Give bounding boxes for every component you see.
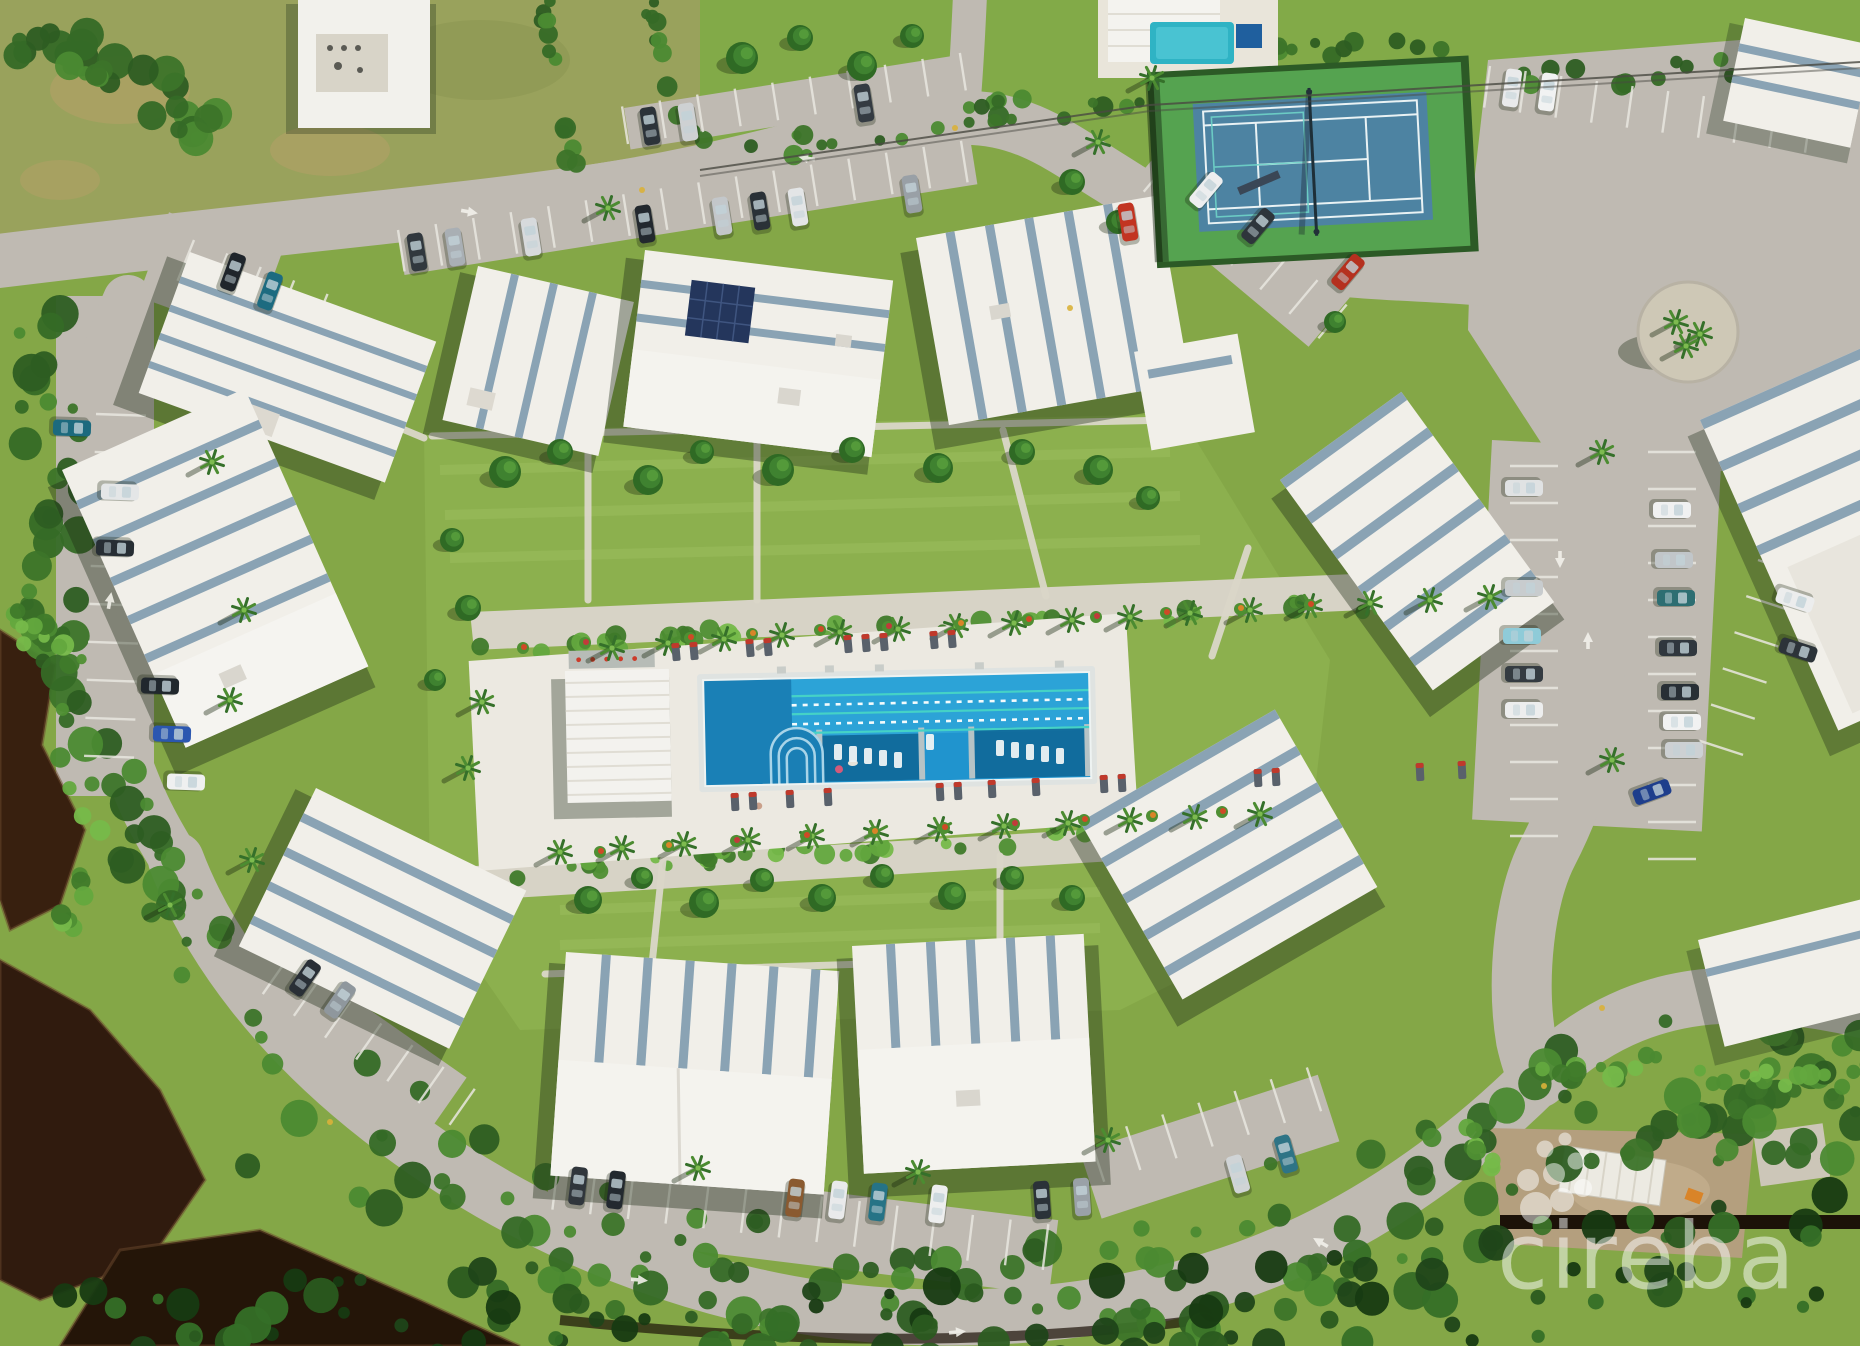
canopy-blob (138, 101, 167, 130)
canopy-blob (954, 842, 966, 854)
canopy-blob (1489, 1087, 1525, 1123)
canopy-blob (1467, 1141, 1487, 1161)
canopy-blob (51, 904, 71, 924)
lounger (786, 790, 795, 808)
lounger (929, 631, 939, 650)
canopy-blob (1506, 1183, 1518, 1195)
canopy-blob (1444, 1317, 1460, 1333)
canopy-blob (816, 140, 827, 151)
canopy-blob (1189, 1294, 1223, 1328)
lounger (1416, 763, 1425, 781)
flower-shrub (882, 621, 894, 633)
canopy-blob (1387, 1202, 1425, 1240)
canopy-blob (31, 351, 58, 378)
canopy-blob (471, 638, 489, 656)
canopy-blob (1136, 1246, 1160, 1270)
road-marking (1067, 305, 1073, 311)
canopy-blob (194, 104, 223, 133)
canopy-blob (166, 1288, 199, 1321)
car (1030, 1180, 1053, 1223)
canopy-blob (74, 807, 92, 825)
canopy-blob (153, 1294, 164, 1305)
canopy-blob (1032, 1303, 1043, 1314)
canopy-blob (1143, 1322, 1165, 1344)
canopy-blob (37, 313, 64, 340)
canopy-blob (1552, 1064, 1570, 1082)
canopy-blob (1790, 1128, 1818, 1156)
flower-shrub (730, 835, 742, 847)
canopy-blob (283, 1269, 307, 1293)
canopy-blob (601, 1213, 624, 1236)
canopy-blob (1670, 56, 1683, 69)
road-marking (327, 1119, 333, 1125)
car (149, 722, 192, 743)
canopy-blob (540, 13, 556, 29)
flower-shrub (1146, 810, 1158, 822)
aerial-photo: cireba (0, 0, 1860, 1346)
canopy-blob (645, 10, 659, 24)
canopy-blob (611, 1315, 638, 1342)
flower-shrub (594, 846, 606, 858)
canopy-blob (1651, 1110, 1680, 1139)
canopy-blob (1335, 40, 1352, 57)
canopy-blob (105, 1297, 126, 1318)
canopy-blob (438, 1130, 466, 1158)
canopy-blob (1088, 98, 1098, 108)
pool-lounger (996, 740, 1004, 756)
canopy-blob (9, 427, 42, 460)
canopy-blob (1235, 1292, 1255, 1312)
canopy-blob (85, 777, 100, 792)
canopy-blob (567, 154, 586, 173)
canopy-blob (1532, 1330, 1545, 1343)
canopy-blob (1416, 1258, 1449, 1291)
canopy-blob (1638, 1047, 1655, 1064)
lounger (1458, 761, 1467, 779)
canopy-blob (22, 551, 52, 581)
canopy-blob (802, 1282, 820, 1300)
car (137, 674, 180, 695)
canopy-blob (1356, 1140, 1385, 1169)
car (1501, 477, 1543, 497)
canopy-blob (1389, 33, 1406, 50)
lounger (824, 788, 833, 806)
lounger (749, 792, 758, 810)
lounger (936, 783, 945, 801)
spa (1236, 24, 1262, 48)
canopy-blob (1057, 1286, 1081, 1310)
canopy-blob (1089, 1263, 1125, 1299)
flower-shrub (662, 840, 674, 852)
canopy-blob (855, 845, 872, 862)
canopy-blob (16, 636, 31, 651)
canopy-blob (1762, 1141, 1786, 1165)
canopy-blob (10, 603, 26, 619)
canopy-blob (26, 618, 43, 635)
lounger (1100, 775, 1109, 793)
canopy-blob (51, 639, 67, 655)
car (1657, 681, 1699, 701)
canopy-blob (1178, 1253, 1209, 1284)
canopy-blob (15, 620, 28, 633)
canopy-blob (1694, 1065, 1706, 1077)
canopy-blob (74, 886, 93, 905)
canopy-blob (1353, 1257, 1378, 1282)
flower-shrub (1234, 603, 1246, 615)
canopy-blob (26, 27, 50, 51)
canopy-blob (1130, 1299, 1151, 1320)
car (1655, 637, 1697, 657)
roof-terrace (316, 34, 388, 92)
lounger (861, 634, 871, 653)
pool-lounger (849, 746, 857, 762)
canopy-blob (1334, 1215, 1361, 1242)
canopy-blob (640, 1251, 651, 1262)
canopy-blob (50, 747, 70, 767)
canopy-blob (262, 1053, 283, 1074)
canopy-blob (67, 690, 92, 715)
canopy-blob (589, 1312, 605, 1328)
canopy-blob (1846, 1065, 1860, 1079)
car (49, 416, 92, 437)
canopy-blob (255, 1291, 288, 1324)
pool-lounger (894, 752, 902, 768)
car (1501, 577, 1543, 597)
flower-shrub (954, 618, 966, 630)
canopy-blob (170, 121, 187, 138)
flower-shrub (814, 624, 826, 636)
canopy-blob (140, 798, 153, 811)
canopy-blob (728, 1262, 749, 1283)
pool-house (550, 649, 671, 819)
canopy-blob (235, 1153, 260, 1178)
canopy-blob (366, 1189, 403, 1226)
car (1653, 587, 1695, 607)
pool-steps (770, 728, 823, 785)
canopy-blob (110, 786, 146, 822)
canopy-blob (553, 1284, 583, 1314)
pool-lounger (834, 744, 842, 760)
canopy-blob (369, 1129, 396, 1156)
car (1501, 663, 1543, 683)
canopy-blob (732, 1313, 753, 1334)
canopy-blob (501, 1216, 533, 1248)
canopy-blob (964, 117, 975, 128)
canopy-blob (1716, 1138, 1739, 1161)
lounger (1254, 769, 1263, 787)
canopy-blob (182, 937, 192, 947)
flower-shrub (1304, 599, 1316, 611)
canopy-blob (1255, 1251, 1288, 1284)
canopy-blob (638, 1313, 650, 1325)
canopy-blob (1321, 1311, 1339, 1329)
pool-lounger (1041, 746, 1049, 762)
lounger (731, 793, 740, 811)
canopy-blob (1483, 1158, 1501, 1176)
canopy-blob (110, 848, 146, 884)
canopy-blob (542, 44, 556, 58)
canopy-blob (70, 18, 104, 52)
canopy-blob (826, 138, 837, 149)
flower-shrub (1078, 814, 1090, 826)
canopy-blob (63, 587, 89, 613)
canopy-blob (434, 1173, 450, 1189)
canopy-blob (21, 584, 37, 600)
canopy-blob (1464, 1182, 1498, 1216)
canopy-blob (1327, 1250, 1343, 1266)
lounger (954, 782, 963, 800)
canopy-blob (1286, 44, 1298, 56)
flower-shrub (800, 830, 812, 842)
flower-shrub (1008, 818, 1020, 830)
canopy-blob (526, 1261, 539, 1274)
pool-lounger (1056, 748, 1064, 764)
canopy-blob (77, 654, 87, 664)
canopy-blob (1627, 1060, 1643, 1076)
canopy-blob (1677, 1104, 1711, 1138)
canopy-blob (85, 64, 107, 86)
canopy-blob (53, 1283, 78, 1308)
neighbor-house (1098, 0, 1278, 78)
flower-shrub (1022, 614, 1034, 626)
flower-shrub (1160, 607, 1172, 619)
canopy-blob (469, 1124, 499, 1154)
canopy-blob (1558, 1090, 1572, 1104)
pool-lounger (864, 748, 872, 764)
lounger (1272, 768, 1281, 786)
canopy-blob (189, 1330, 201, 1342)
canopy-blob (555, 117, 576, 138)
canopy-blob (79, 1277, 107, 1305)
road-marking (639, 187, 645, 193)
canopy-blob (14, 327, 26, 339)
solar-panels (685, 280, 755, 343)
canopy-blob (15, 400, 29, 414)
lounger (843, 635, 853, 654)
car (1501, 699, 1543, 719)
canopy-blob (912, 1315, 938, 1341)
canopy-blob (793, 125, 813, 145)
lounger (1118, 774, 1127, 792)
canopy-blob (963, 101, 976, 114)
canopy-blob (931, 121, 945, 135)
canopy-blob (1000, 1255, 1025, 1280)
canopy-blob (1566, 59, 1586, 79)
canopy-blob (1239, 1220, 1255, 1236)
canopy-blob (55, 52, 84, 81)
canopy-blob (651, 32, 668, 49)
canopy-blob (1006, 114, 1017, 125)
watermark-text: cireba (1497, 1203, 1797, 1310)
flower-shrub (1090, 611, 1102, 623)
canopy-blob (1422, 1128, 1441, 1147)
canopy-blob (1659, 1014, 1673, 1028)
flower-shrub (1216, 806, 1228, 818)
canopy-blob (281, 1100, 318, 1137)
canopy-blob (1809, 1286, 1824, 1301)
canopy-blob (1812, 1177, 1848, 1213)
canopy-blob (1742, 1104, 1776, 1138)
canopy-blob (122, 759, 147, 784)
canopy-blob (1574, 1101, 1597, 1124)
canopy-blob (244, 1009, 262, 1027)
lounger (745, 639, 755, 658)
canopy-blob (4, 41, 32, 69)
flower-shrub (579, 637, 591, 649)
lap-pool (703, 672, 1091, 786)
car (97, 480, 140, 501)
canopy-blob (40, 393, 57, 410)
canopy-blob (1740, 1069, 1750, 1079)
canopy-blob (1092, 1318, 1119, 1345)
canopy-blob (174, 967, 191, 984)
canopy-blob (1355, 1282, 1389, 1316)
car (92, 536, 135, 557)
canopy-blob (59, 654, 79, 674)
canopy-blob (674, 1234, 686, 1246)
pool-lounger (1026, 744, 1034, 760)
canopy-blob (1404, 1156, 1433, 1185)
neighbor-building (286, 0, 436, 134)
canopy-blob (992, 95, 1005, 108)
car (163, 770, 206, 791)
road-marking (1599, 1005, 1605, 1011)
canopy-blob (125, 824, 144, 843)
lounger (689, 642, 699, 661)
flower-shrub (517, 642, 529, 654)
canopy-blob (809, 1299, 824, 1314)
car (1070, 1177, 1093, 1220)
canopy-blob (1778, 1079, 1792, 1093)
canopy-blob (486, 1290, 521, 1325)
canopy-blob (1820, 1141, 1855, 1176)
building (836, 933, 1111, 1198)
pool-lounger (879, 750, 887, 766)
car (1661, 739, 1703, 759)
canopy-blob (303, 1278, 338, 1313)
lounger (671, 643, 681, 662)
canopy-blob (1274, 1298, 1297, 1321)
canopy-blob (355, 1274, 367, 1286)
canopy-blob (1133, 1220, 1149, 1236)
canopy-blob (1013, 90, 1032, 109)
canopy-blob (744, 139, 758, 153)
canopy-blob (923, 1267, 961, 1305)
flower-shrub (868, 826, 880, 838)
canopy-blob (1749, 1071, 1761, 1083)
canopy-blob (1397, 1253, 1408, 1264)
aerial-photo-listing: cireba (0, 0, 1860, 1346)
lounger (763, 638, 773, 657)
flower-shrub (938, 822, 950, 834)
canopy-blob (974, 99, 990, 115)
canopy-blob (501, 1192, 515, 1206)
canopy-blob (699, 1291, 717, 1309)
pool-lounger (926, 734, 934, 750)
canopy-blob (468, 1257, 497, 1286)
canopy-blob (693, 1243, 718, 1268)
canopy-blob (564, 1226, 576, 1238)
canopy-blob (1425, 1218, 1443, 1236)
canopy-blob (62, 781, 76, 795)
car (1659, 711, 1701, 731)
canopy-blob (1797, 1301, 1809, 1313)
canopy-blob (1706, 1076, 1721, 1091)
canopy-blob (1620, 1145, 1635, 1160)
canopy-blob (90, 820, 111, 841)
canopy-blob (685, 1311, 698, 1324)
canopy-blob (1310, 38, 1320, 48)
canopy-blob (884, 1289, 894, 1299)
canopy-blob (1602, 1066, 1624, 1088)
canopy-blob (1466, 1122, 1483, 1139)
canopy-blob (1410, 39, 1426, 55)
canopy-blob (657, 76, 678, 97)
canopy-blob (1191, 1227, 1202, 1238)
canopy-blob (891, 1267, 914, 1290)
canopy-blob (354, 1050, 381, 1077)
canopy-blob (863, 1262, 879, 1278)
canopy-blob (548, 1331, 563, 1346)
flower-shrub (746, 628, 758, 640)
canopy-blob (1535, 1062, 1550, 1077)
canopy-blob (840, 849, 853, 862)
canopy-blob (1119, 99, 1134, 114)
canopy-blob (255, 1031, 268, 1044)
canopy-blob (128, 55, 159, 86)
canopy-blob (1583, 1153, 1599, 1169)
car (1649, 499, 1691, 519)
canopy-blob (1264, 1157, 1277, 1170)
canopy-blob (56, 703, 69, 716)
canopy-blob (394, 1318, 408, 1332)
canopy-blob (1268, 1204, 1291, 1227)
canopy-blob (1800, 1225, 1822, 1247)
car (1499, 625, 1541, 645)
canopy-blob (394, 1162, 431, 1199)
lounger (947, 630, 957, 649)
canopy-blob (964, 1283, 983, 1302)
canopy-blob (1004, 1287, 1022, 1305)
lounger (988, 780, 997, 798)
pool-lounger (1011, 742, 1019, 758)
canopy-blob (166, 96, 189, 119)
canopy-blob (161, 847, 185, 871)
canopy-blob (192, 889, 203, 900)
canopy-blob (880, 1308, 892, 1320)
canopy-blob (1799, 1064, 1820, 1085)
canopy-blob (767, 1312, 798, 1343)
road-marking (1541, 1083, 1547, 1089)
canopy-blob (1100, 1241, 1119, 1260)
canopy-blob (1433, 41, 1450, 58)
lounger (879, 633, 889, 652)
canopy-blob (588, 1263, 611, 1286)
canopy-blob (338, 1307, 350, 1319)
canopy-blob (633, 1271, 668, 1306)
road-marking (952, 125, 958, 131)
lounger (1032, 778, 1041, 796)
canopy-blob (1834, 1079, 1850, 1095)
canopy-blob (68, 403, 78, 413)
car (1651, 549, 1693, 569)
